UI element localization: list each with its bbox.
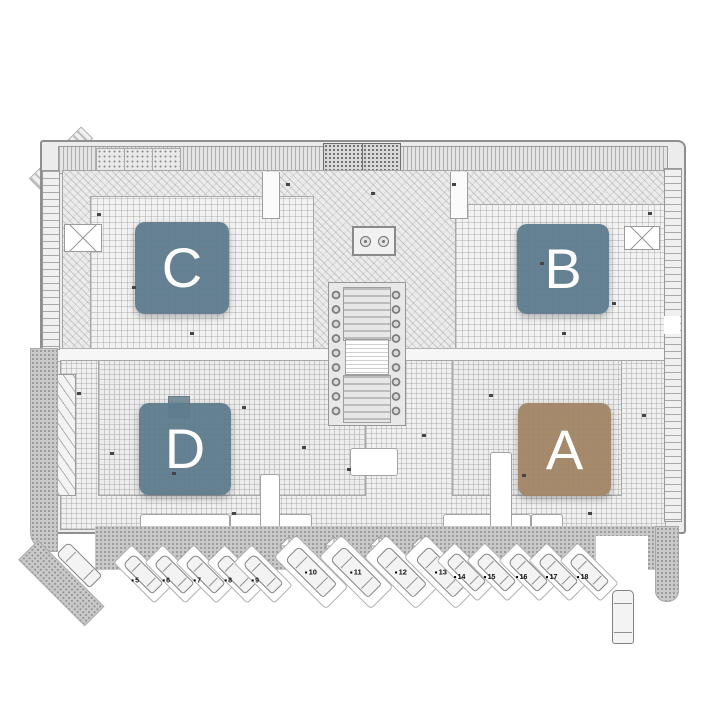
site-plan: C B D A 5 6 7 8 9	[0, 0, 720, 720]
wall-detail	[490, 452, 512, 528]
column-row-left	[330, 288, 342, 420]
car-icon	[612, 590, 634, 644]
walkway-gap	[664, 316, 680, 334]
column-markers	[0, 0, 4, 3]
wall-detail	[260, 474, 280, 530]
planter-box	[124, 148, 153, 171]
driveway-right-strip	[655, 526, 679, 602]
stall-number: 18	[577, 574, 588, 581]
planter-box	[96, 148, 125, 171]
driveway-left	[30, 348, 58, 552]
stall-number: 8	[225, 577, 232, 584]
vent-circle-icon	[378, 236, 389, 247]
ramp-stripes-upper	[343, 287, 391, 341]
skylight-detail	[350, 448, 398, 476]
shaft	[262, 172, 280, 219]
block-c-button[interactable]: C	[135, 222, 229, 314]
stall-number: 10	[305, 568, 317, 577]
block-a-button[interactable]: A	[518, 403, 611, 496]
stall-number: 6	[163, 577, 170, 584]
stall-number: 16	[516, 574, 527, 581]
block-b-button[interactable]: B	[517, 224, 609, 314]
stall-number: 14	[454, 574, 465, 581]
stall-number: 11	[350, 568, 361, 577]
ramp-stripes-lower	[343, 375, 391, 423]
block-b-label: B	[544, 241, 581, 297]
stall-number: 12	[395, 568, 407, 577]
stall-number: 5	[132, 577, 139, 584]
block-d-label: D	[165, 421, 205, 477]
edge-walkway-right	[664, 168, 682, 522]
column-row-right	[390, 288, 402, 420]
shaft	[450, 172, 468, 219]
cross-panel	[64, 224, 102, 252]
stall-number: 17	[546, 574, 557, 581]
utility-box	[352, 226, 396, 256]
stall-number: 9	[252, 577, 259, 584]
block-a-label: A	[546, 422, 583, 478]
parking-row: 5 6 7 8 9 10 11	[110, 533, 640, 628]
central-core	[328, 282, 406, 426]
edge-walkway-left	[42, 170, 60, 350]
cross-panel	[624, 226, 660, 250]
core-stair	[345, 339, 389, 375]
stall-number: 7	[194, 577, 201, 584]
planter-box	[152, 148, 181, 171]
stall-number: 15	[484, 574, 495, 581]
vent-circle-icon	[360, 236, 371, 247]
block-d-button[interactable]: D	[139, 403, 231, 495]
block-c-label: C	[162, 240, 202, 296]
